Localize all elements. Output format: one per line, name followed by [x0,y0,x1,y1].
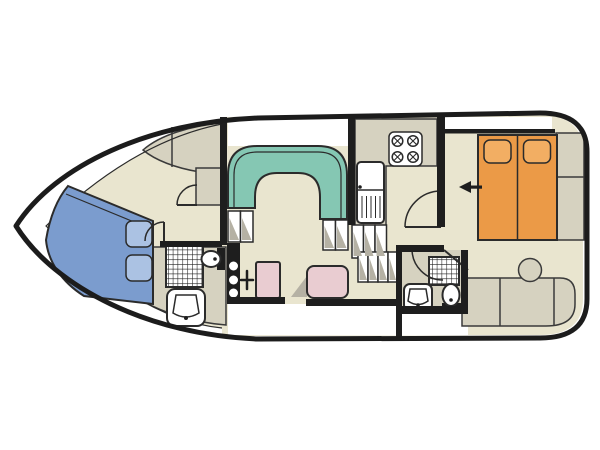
boat-floor-plan [0,0,600,450]
rear-double-bed [478,135,557,240]
wall-salon-bottom-right [306,299,400,306]
wall-bow-divider [220,117,227,245]
wall-rear-bathroom-top [396,245,444,252]
helm-instruments [229,262,238,298]
washbasin-drain [184,316,188,320]
instrument-dial [229,262,238,271]
faucet [358,185,362,189]
wall-galley-left [348,115,355,225]
instrument-dial [229,289,238,298]
instrument-dial [229,276,238,285]
bow-cabinet-block [196,168,222,205]
wall-front-bathroom-top [160,241,222,247]
wall-rear-bathroom-bottom [396,306,468,314]
rear-side-wardrobe [556,133,584,240]
rear-bottom-cabinets [462,278,575,326]
toilet-bowl [443,284,460,306]
pillow [524,140,551,163]
shower-tray [166,246,203,287]
helm-seat [256,262,280,298]
toilet-bowl [202,251,221,267]
floor-plan-canvas [0,0,600,450]
salon-bench [307,266,348,298]
pillow [126,255,152,281]
wall-rear-cabin-top [440,129,555,134]
wall-salon-bottom-left [227,297,285,304]
toilet-flush-dot [213,257,217,261]
wall-rear-bathroom-left [396,247,402,338]
pillow [484,140,511,163]
pillow [126,221,152,247]
stove-unit [389,132,422,166]
toilet-flush-dot [449,298,453,302]
strip-above-rear-cabin [444,117,552,130]
wall-rear-bathroom-right [461,250,468,312]
strip-above-dinette [228,119,348,146]
stool [519,259,542,282]
shower-tray [429,257,459,285]
